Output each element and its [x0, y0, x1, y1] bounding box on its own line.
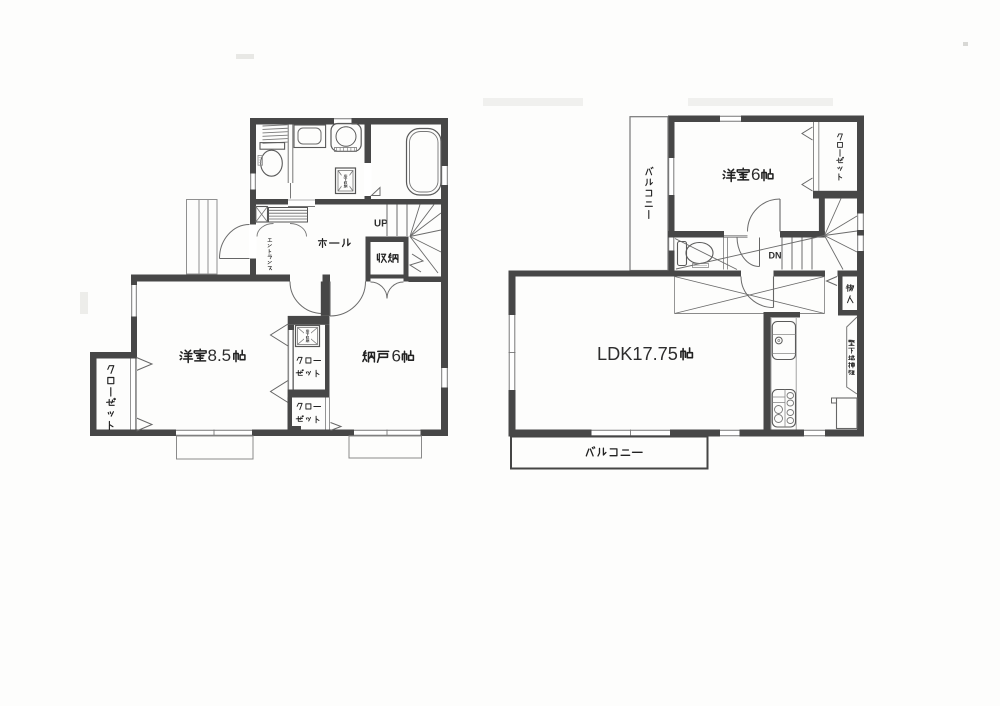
svg-text:8.5: 8.5	[208, 346, 232, 365]
svg-text:LDK17.75: LDK17.75	[597, 344, 678, 364]
svg-text:DN: DN	[769, 251, 782, 261]
svg-text:6: 6	[392, 347, 401, 366]
svg-text:UP: UP	[374, 219, 388, 230]
svg-text:6: 6	[751, 165, 760, 184]
